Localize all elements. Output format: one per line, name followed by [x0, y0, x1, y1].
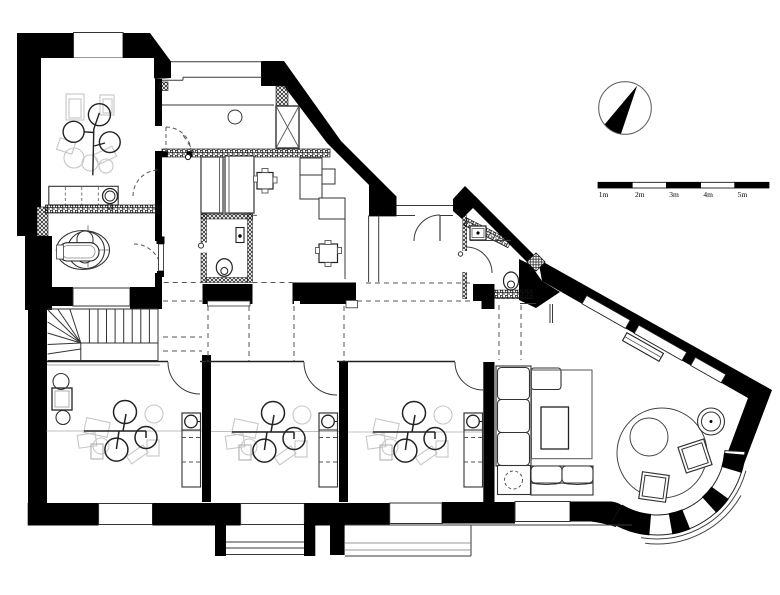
svg-text:4m: 4m — [703, 190, 713, 199]
svg-text:3m: 3m — [669, 190, 679, 199]
svg-text:2m: 2m — [635, 190, 645, 199]
svg-text:1m: 1m — [599, 190, 609, 199]
svg-text:5m: 5m — [738, 190, 748, 199]
